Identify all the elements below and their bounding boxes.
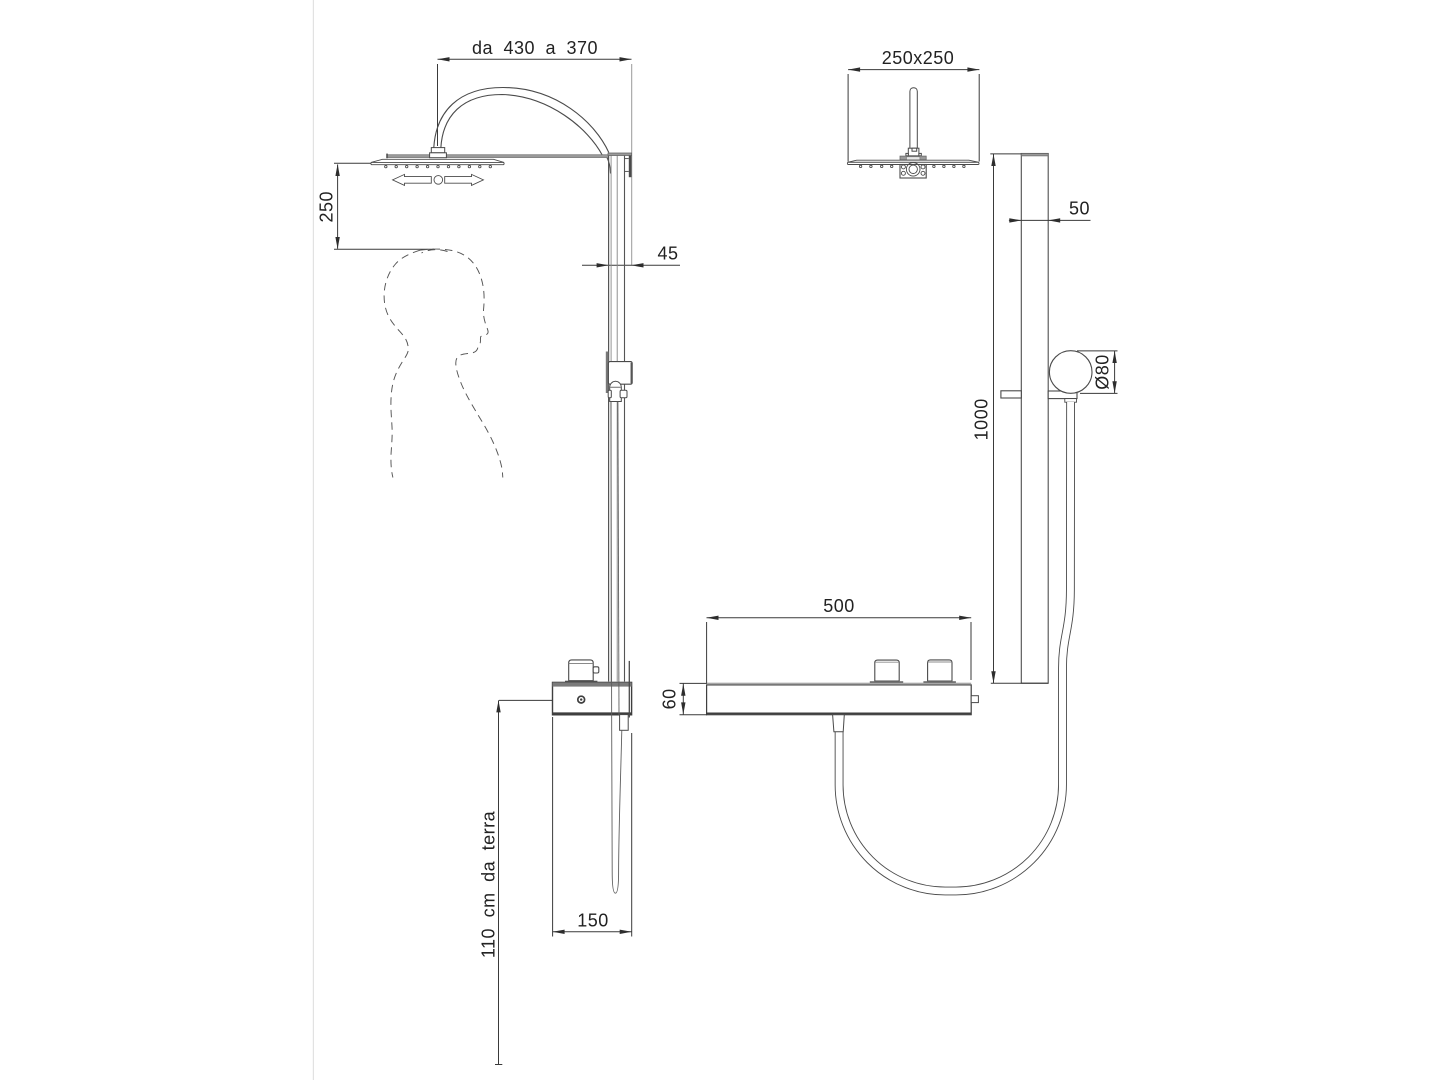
svg-text:50: 50 xyxy=(1069,199,1090,219)
svg-text:250x250: 250x250 xyxy=(882,48,955,68)
svg-text:500: 500 xyxy=(823,596,855,616)
svg-text:60: 60 xyxy=(660,688,680,709)
svg-text:250: 250 xyxy=(317,191,337,223)
svg-text:da 430 a 370: da 430 a 370 xyxy=(472,38,598,58)
svg-text:45: 45 xyxy=(657,244,678,264)
svg-text:1000: 1000 xyxy=(972,398,992,440)
svg-text:Ø80: Ø80 xyxy=(1092,354,1112,390)
svg-text:150: 150 xyxy=(577,911,609,931)
svg-text:110 cm da terra: 110 cm da terra xyxy=(479,810,499,958)
